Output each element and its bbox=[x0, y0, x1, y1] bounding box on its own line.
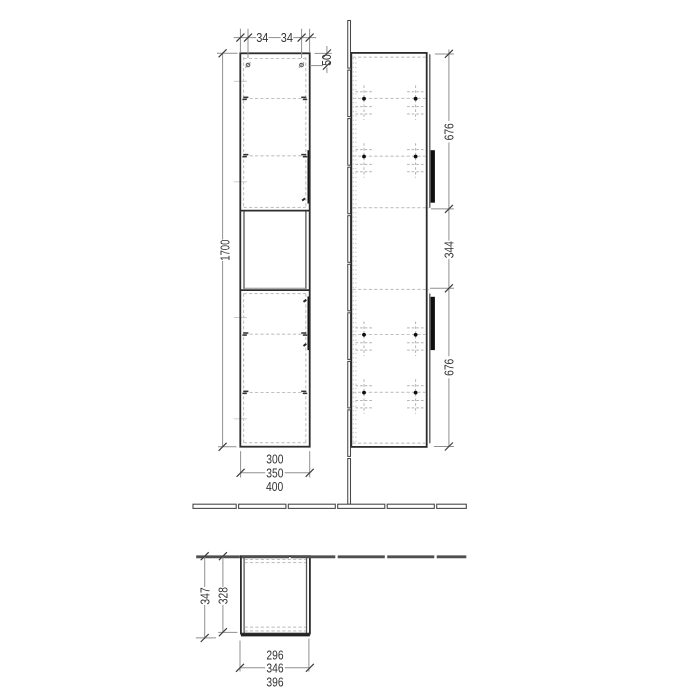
svg-text:400: 400 bbox=[266, 479, 283, 494]
svg-text:346: 346 bbox=[266, 660, 283, 675]
svg-text:396: 396 bbox=[266, 675, 283, 690]
svg-text:676: 676 bbox=[441, 123, 456, 140]
svg-text:328: 328 bbox=[216, 587, 231, 604]
svg-text:34: 34 bbox=[281, 30, 293, 45]
svg-text:344: 344 bbox=[441, 241, 456, 258]
svg-text:50: 50 bbox=[319, 54, 334, 66]
svg-text:1700: 1700 bbox=[217, 240, 232, 261]
svg-text:34: 34 bbox=[256, 30, 268, 45]
svg-text:676: 676 bbox=[441, 359, 456, 376]
svg-text:347: 347 bbox=[197, 587, 212, 604]
